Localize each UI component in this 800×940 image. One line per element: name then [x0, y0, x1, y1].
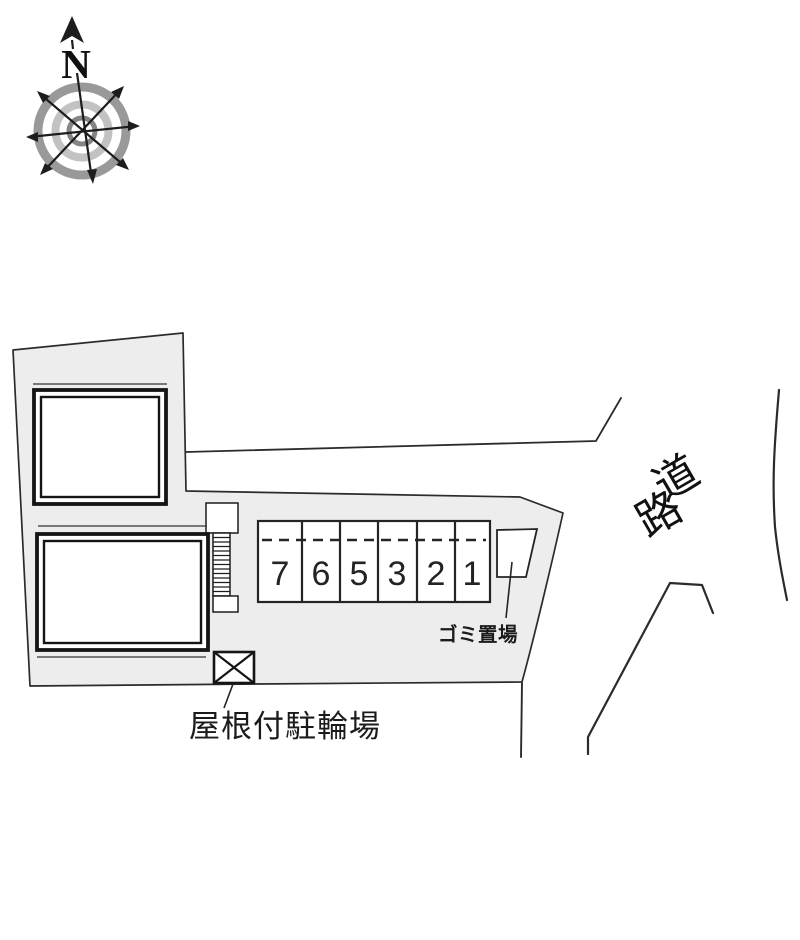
site-plan: N 7 6 5 3 2 1 — [0, 0, 800, 940]
parcel-extension-line — [521, 683, 522, 757]
bicycle-parking-label: 屋根付駐輪場 — [189, 709, 381, 744]
road-boundary-lower — [588, 583, 713, 754]
road-boundary-right — [774, 390, 787, 600]
road-boundary-upper — [186, 398, 621, 452]
staircase-top-landing — [206, 503, 238, 533]
parking-stall-number: 1 — [463, 555, 482, 593]
building-upper — [33, 384, 167, 504]
parking-stall-number: 6 — [312, 555, 331, 593]
north-arrow-icon — [60, 16, 84, 43]
building-lower — [37, 526, 208, 657]
compass-rose: N — [26, 16, 140, 184]
north-label: N — [61, 41, 91, 87]
staircase-bottom-landing — [213, 596, 238, 612]
parking-stall-number: 2 — [427, 555, 446, 593]
parking-stall-number: 3 — [388, 555, 407, 593]
parking-stall-number: 5 — [350, 555, 369, 593]
parking-stall-number: 7 — [271, 555, 290, 593]
bicycle-parking-leader — [224, 684, 233, 708]
covered-bicycle-parking-marker — [214, 652, 254, 683]
parking-lot: 7 6 5 3 2 1 — [258, 521, 490, 602]
garbage-area-label: ゴミ置場 — [438, 623, 518, 646]
